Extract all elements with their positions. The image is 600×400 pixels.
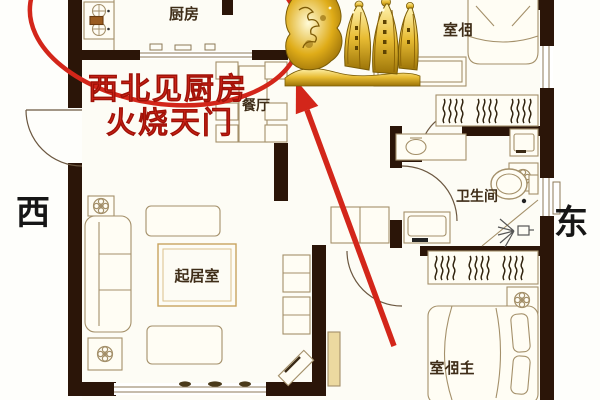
bathroom-label: 卫生间 <box>456 188 498 205</box>
master-bedroom-label: 主卧室 <box>429 359 474 377</box>
dresser-icon <box>328 332 340 386</box>
coffee-table-icon <box>146 206 220 236</box>
floor-plan: 厨房 餐厅 起居室 <box>0 0 600 400</box>
compass-west-label: 西 <box>16 193 50 233</box>
kitchen-label: 厨房 <box>169 5 199 23</box>
bed-icon <box>468 0 538 64</box>
plant-icon <box>515 293 530 308</box>
floorplan-screenshot: 厨房 餐厅 起居室 <box>0 0 600 400</box>
pillow-icon <box>510 355 530 394</box>
bedroom-label: 卧室 <box>443 21 473 39</box>
compass-east-label: 东 <box>554 203 588 243</box>
pillow-icon <box>510 313 530 352</box>
sofa-icon <box>85 216 131 332</box>
annotation-text-line2: 火烧天门 <box>106 106 234 141</box>
living-room-label: 起居室 <box>173 267 219 285</box>
entry-door-arc <box>26 110 82 166</box>
annotation-text-line1: 西北见厨房 <box>88 72 248 107</box>
tv-bench-icon <box>147 326 222 364</box>
hallway-cabinet-icon <box>331 207 389 243</box>
